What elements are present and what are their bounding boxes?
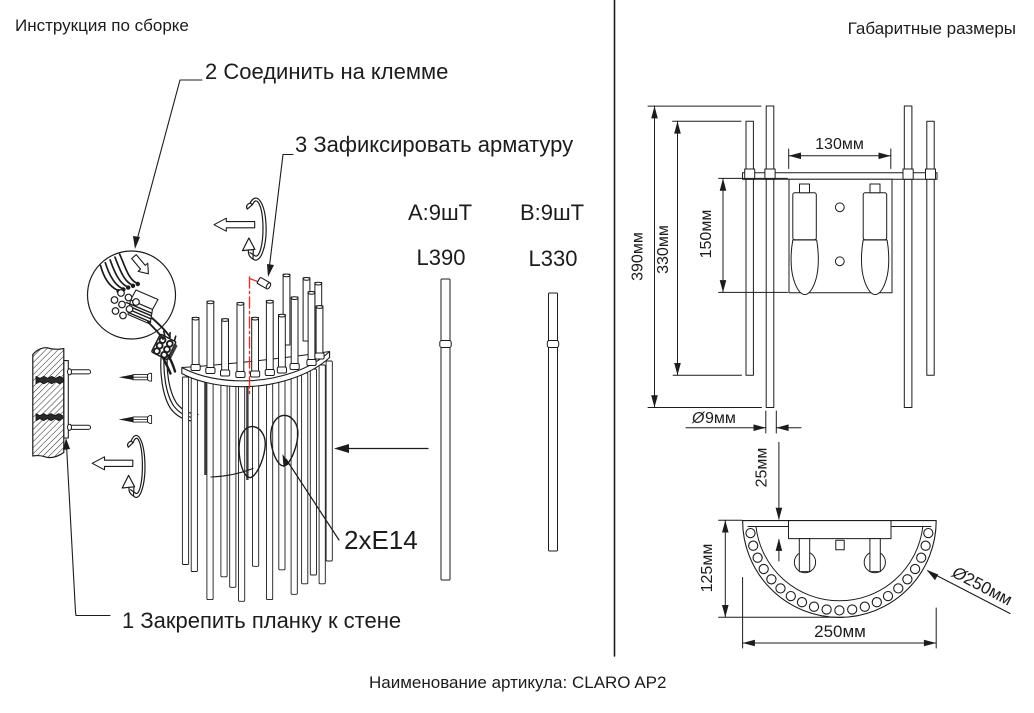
svg-text:3 Зафиксировать арматуру: 3 Зафиксировать арматуру xyxy=(295,132,573,157)
svg-text:Инструкция по сборке: Инструкция по сборке xyxy=(15,16,189,35)
svg-text:390мм: 390мм xyxy=(630,232,647,281)
svg-text:125мм: 125мм xyxy=(699,544,716,593)
svg-text:1 Закрепить планку к стене: 1 Закрепить планку к стене xyxy=(122,608,401,633)
svg-text:130мм: 130мм xyxy=(815,136,864,153)
svg-text:Ø: Ø xyxy=(691,410,706,427)
svg-text:250мм: 250мм xyxy=(814,622,866,641)
svg-text:А:9шТ: А:9шТ xyxy=(408,200,472,225)
svg-text:2 Соединить на клемме: 2 Соединить на клемме xyxy=(205,59,448,84)
svg-text:В:9шТ: В:9шТ xyxy=(520,200,584,225)
svg-text:Наименование артикула: CLARO A: Наименование артикула: CLARO AP2 xyxy=(369,673,666,692)
svg-text:Габаритные размеры: Габаритные размеры xyxy=(848,19,1016,38)
svg-text:L330: L330 xyxy=(529,246,578,271)
svg-text:150мм: 150мм xyxy=(698,210,715,259)
svg-text:9мм: 9мм xyxy=(705,410,736,427)
svg-text:250мм: 250мм xyxy=(961,569,1016,610)
svg-text:2хЕ14: 2хЕ14 xyxy=(344,525,418,555)
svg-text:330мм: 330мм xyxy=(655,225,672,274)
svg-text:L390: L390 xyxy=(417,245,466,270)
svg-text:25мм: 25мм xyxy=(754,448,771,488)
